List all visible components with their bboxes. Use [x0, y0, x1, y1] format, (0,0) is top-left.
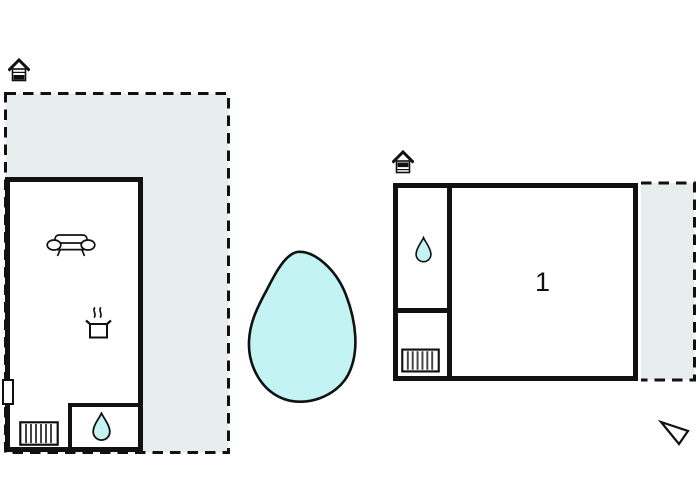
- water-drop-icon: [415, 235, 432, 265]
- radiator-icon: [401, 348, 440, 373]
- steam-line: [94, 308, 95, 317]
- house-roof: [394, 152, 413, 162]
- house-roof: [10, 60, 29, 70]
- room-1-label: 1: [535, 267, 550, 298]
- interior-wall-horizontal: [398, 308, 447, 313]
- radiator-icon: [19, 421, 59, 446]
- steam-line: [100, 308, 101, 317]
- window-marker: [2, 379, 14, 405]
- terrace-right-fill: [641, 183, 695, 380]
- room-1: 1: [452, 188, 633, 376]
- floorplan-canvas: 1: [0, 0, 700, 500]
- house-icon: [392, 150, 414, 176]
- pond: [244, 247, 362, 409]
- direction-arrow-icon: [657, 417, 693, 448]
- water-drop-icon: [92, 412, 111, 442]
- bathroom-left: [68, 403, 138, 447]
- building-left: [5, 177, 143, 452]
- house-icon: [8, 58, 30, 84]
- terrace-right-dashed-area: [641, 181, 700, 384]
- building-right: 1: [393, 183, 638, 381]
- cooking-pot-icon: [83, 305, 113, 343]
- sofa-icon: [46, 231, 96, 259]
